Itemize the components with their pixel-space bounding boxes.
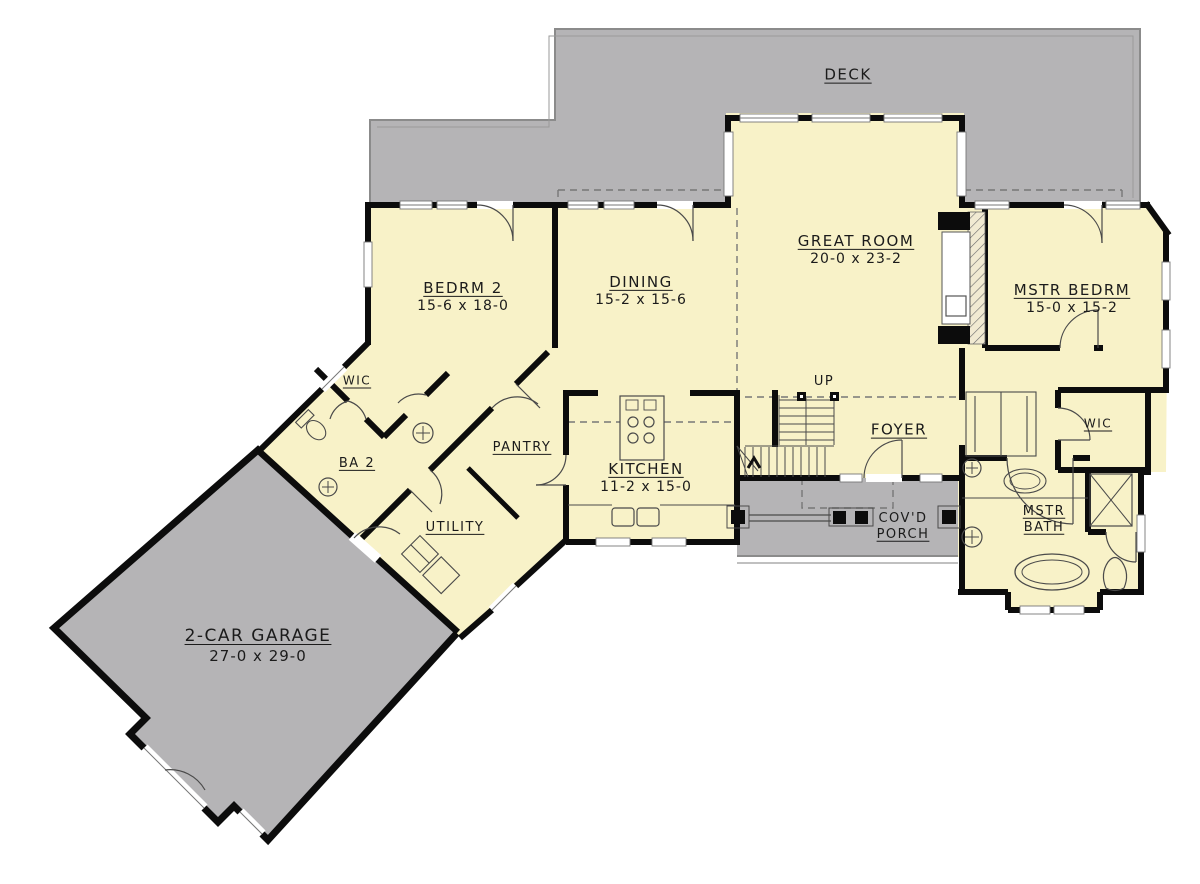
room-label-utility: UTILITY: [426, 520, 485, 536]
room-label-mstr-bedrm: MSTR BEDRM 15-0 x 15-2: [1014, 281, 1131, 317]
room-label-garage: 2-CAR GARAGE 27-0 x 29-0: [185, 626, 332, 666]
floor-plan-drawing: [0, 0, 1200, 884]
room-label-dining: DINING 15-2 x 15-6: [595, 273, 687, 309]
room-label-ba-2: BA 2: [339, 456, 375, 472]
room-label-great-room: GREAT ROOM 20-0 x 23-2: [798, 232, 915, 268]
fireplace: [938, 212, 985, 344]
room-label-deck: DECK: [824, 66, 871, 85]
stairs-up-label: UP: [814, 374, 834, 390]
room-label-wic-master: WIC: [1084, 417, 1112, 432]
room-label-mstr-bath: MSTR BATH: [1023, 504, 1065, 537]
room-label-foyer: FOYER: [871, 421, 927, 440]
floor-plan: DECK GREAT ROOM 20-0 x 23-2 MSTR BEDRM 1…: [0, 0, 1200, 884]
room-label-pantry: PANTRY: [493, 440, 552, 456]
room-label-kitchen: KITCHEN 11-2 x 15-0: [600, 460, 692, 496]
room-label-covd-porch: COV'D PORCH: [877, 511, 930, 544]
room-label-wic-bedrm2: WIC: [343, 374, 371, 389]
room-label-bedrm-2: BEDRM 2 15-6 x 18-0: [417, 279, 509, 315]
great-room-protrusion: [726, 113, 964, 208]
kitchen-island: [620, 396, 664, 460]
